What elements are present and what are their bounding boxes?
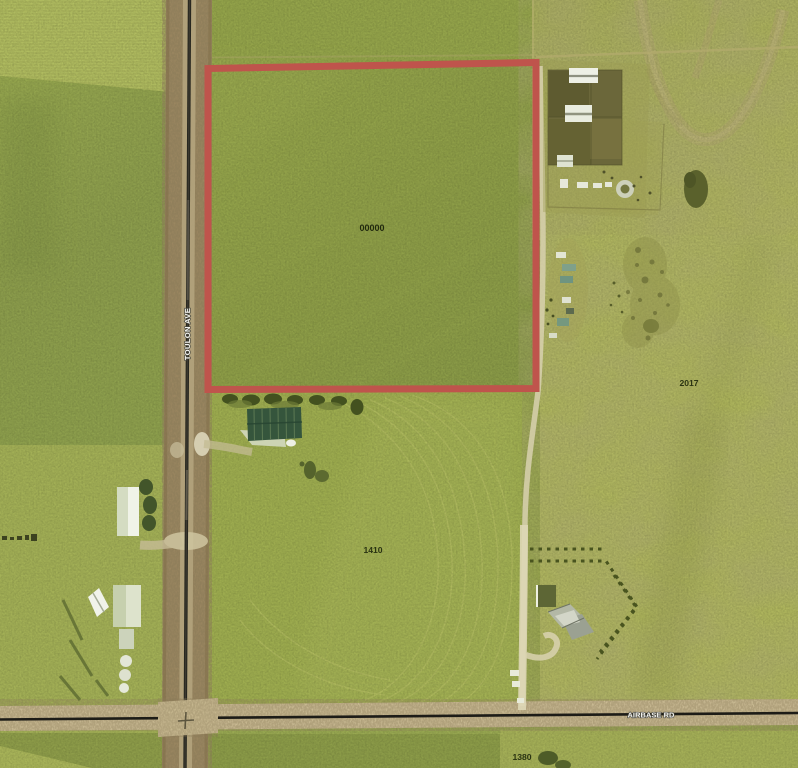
svg-text:1410: 1410 <box>363 545 382 555</box>
svg-text:00000: 00000 <box>359 223 384 233</box>
svg-text:1380: 1380 <box>512 752 531 762</box>
svg-text:2017: 2017 <box>679 378 698 388</box>
svg-text:TOULON AVE: TOULON AVE <box>183 308 192 360</box>
svg-text:AIRBASE RD: AIRBASE RD <box>628 711 676 720</box>
